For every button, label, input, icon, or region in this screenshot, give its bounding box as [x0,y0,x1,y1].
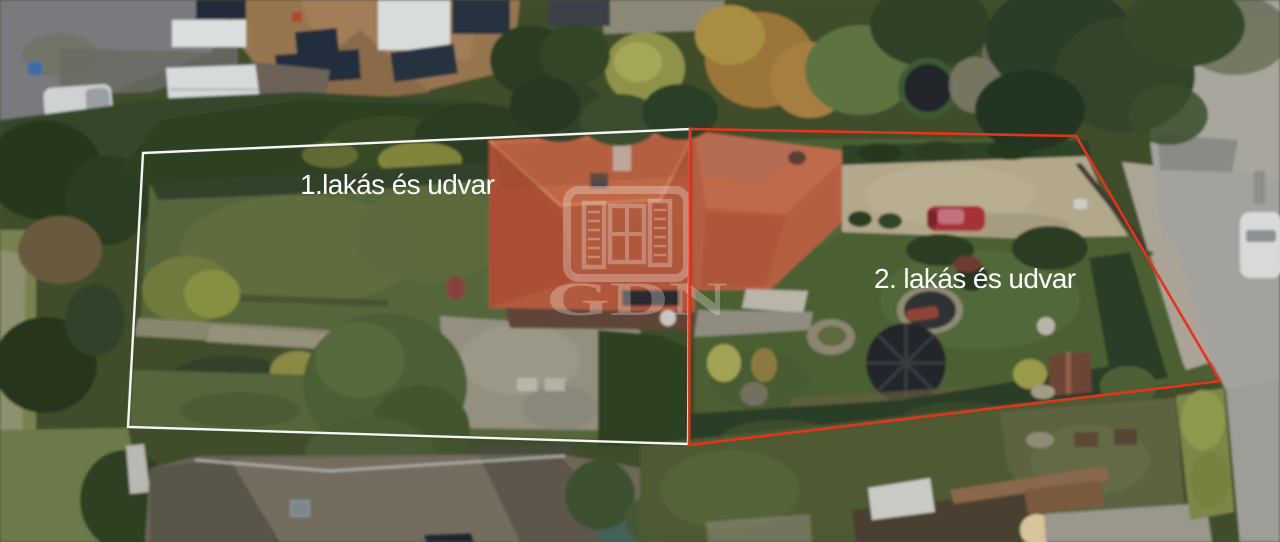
svg-text:2. lakás és udvar: 2. lakás és udvar [874,263,1076,294]
svg-text:1.lakás és udvar: 1.lakás és udvar [300,169,495,200]
svg-text:GDN: GDN [546,273,729,326]
